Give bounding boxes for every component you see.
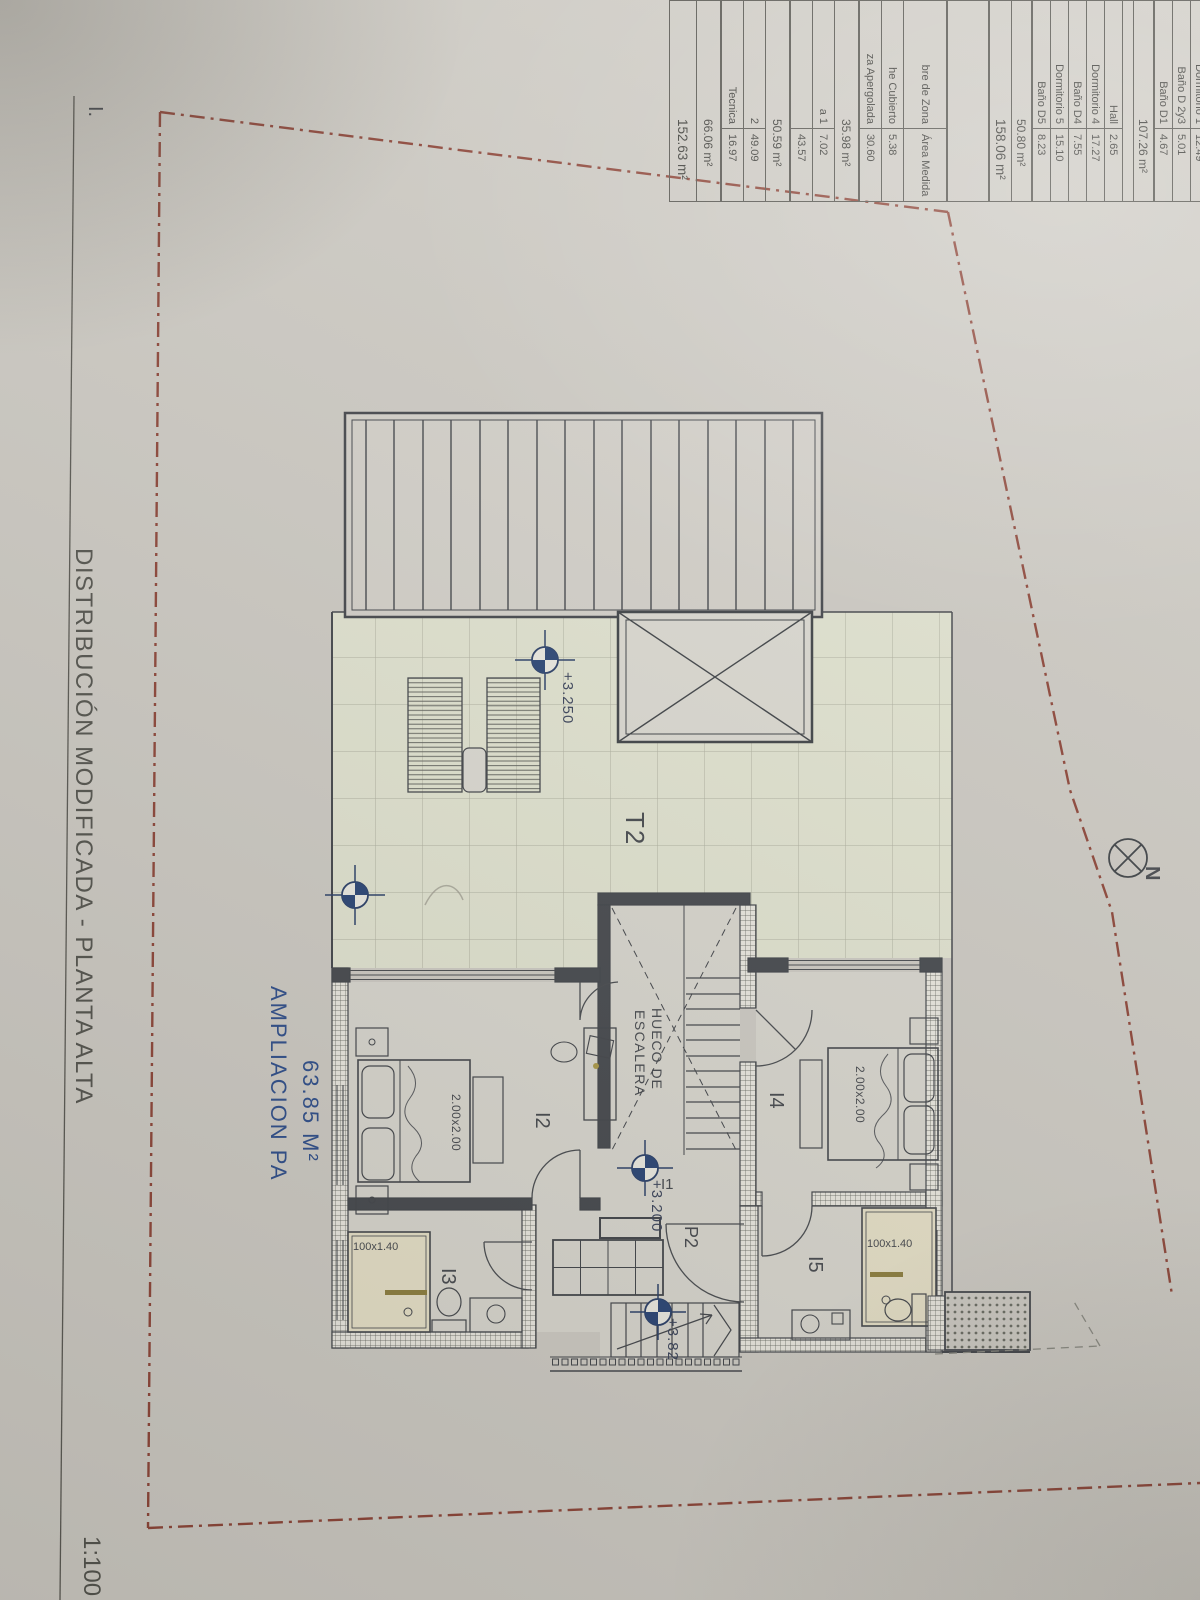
zone-total-cell: 50.59 m² — [771, 1, 785, 166]
zone-area-cell: 5.01 — [1176, 129, 1188, 201]
zone-area-cell: 8.23 — [1036, 129, 1048, 201]
area-table-row: 50.80 m² — [1011, 1, 1032, 201]
area-table-row: Dormitorio 112.49 — [1190, 1, 1200, 201]
paved-area — [928, 1292, 1100, 1354]
area-table-row: Dormitorio 417.27 — [1086, 1, 1104, 201]
room-label-i5: I5 — [804, 1256, 825, 1273]
zone-area-cell: 7.55 — [1072, 129, 1084, 201]
skylight-void — [618, 612, 812, 742]
room-label-i4: I4 — [765, 1092, 786, 1109]
area-table-row: 107.26 m² — [1133, 1, 1154, 201]
zone-name-cell: a 1 — [813, 1, 834, 129]
zone-area-cell: 17.27 — [1090, 129, 1102, 201]
area-table-upper: Dormitorio 112.49Baño D 2y35.01Baño D14.… — [988, 1, 1200, 201]
zone-total-cell: 35.98 m² — [840, 1, 854, 166]
room-label-i3: I3 — [437, 1268, 458, 1285]
zone-name-cell: Baño D1 — [1155, 1, 1172, 129]
stairwell-label-line1: HUECO DE — [649, 1008, 664, 1090]
zone-total-cell: 66.06 m² — [702, 1, 716, 166]
area-table-row: 152.63 m² — [669, 1, 696, 201]
shower-dimension-i5: 100x1.40 — [867, 1239, 912, 1250]
bed-dimension-i2: 2.00x2.00 — [449, 1094, 462, 1151]
page-title: DISTRIBUCIÓN MODIFICADA - PLANTA ALTA — [71, 548, 96, 1105]
bed-dimension-i4: 2.00x2.00 — [853, 1066, 866, 1123]
area-table-row: 158.06 m² — [989, 1, 1011, 201]
north-label: N — [1141, 866, 1162, 880]
area-table-row: Hall2.65 — [1104, 1, 1122, 201]
plan-linework — [0, 0, 1200, 1600]
zone-name-cell: Tecnica — [722, 1, 743, 129]
zone-total-cell: 152.63 m² — [676, 1, 691, 180]
corner-label: I. — [84, 106, 105, 117]
extension-label: AMPLIACION PA — [267, 986, 290, 1182]
zone-area-cell: 5.38 — [887, 129, 899, 201]
zone-name-cell: Dormitorio 5 — [1051, 1, 1068, 129]
shower-dimension-i3: 100x1.40 — [353, 1242, 398, 1253]
area-table-gap — [947, 1, 988, 201]
building-interior — [348, 905, 926, 1360]
zone-name-cell: Dormitorio 4 — [1087, 1, 1104, 129]
zone-area-cell: 30.60 — [865, 129, 877, 201]
area-table: Dormitorio 112.49Baño D 2y35.01Baño D14.… — [669, 0, 1200, 202]
area-table-row: 249.09 — [743, 1, 765, 201]
area-table-row: Dormitorio 515.10 — [1050, 1, 1068, 201]
stairwell-label-line2: ESCALERA — [632, 1010, 647, 1097]
zone-area-cell: 15.10 — [1054, 129, 1066, 201]
extension-area: 63.85 M² — [299, 1060, 322, 1163]
area-table-row: 35.98 m² — [834, 1, 859, 201]
zone-total-cell: 50.80 m² — [1015, 1, 1029, 166]
door-label-p2: P2 — [681, 1226, 700, 1248]
zone-area-cell: 12.49 — [1194, 129, 1200, 201]
zone-area-cell: 16.97 — [727, 129, 739, 201]
zone-area-cell: 49.09 — [749, 129, 761, 201]
zone-name-cell: Baño D4 — [1069, 1, 1086, 129]
area-table-row — [1122, 1, 1133, 201]
zone-name-cell: Hall — [1105, 1, 1122, 129]
table-header-name: bre de Zona — [904, 1, 946, 129]
area-table-row: Baño D58.23 — [1032, 1, 1050, 201]
scale-label: 1:100 — [79, 1536, 104, 1596]
zone-name-cell: za Apergolada — [860, 1, 881, 129]
zone-total-cell: 107.26 m² — [1137, 1, 1151, 173]
pergola — [345, 413, 822, 617]
area-table-row: a 17.02 — [812, 1, 834, 201]
room-label-terrace: T2 — [621, 812, 648, 846]
zone-area-cell: 4.67 — [1158, 129, 1170, 201]
area-table-header: bre de Zona Área Medida — [903, 1, 947, 201]
area-table-row: za Apergolada30.60 — [859, 1, 881, 201]
zone-name-cell: he Cubierto — [882, 1, 903, 129]
blueprint-photo: I. DISTRIBUCIÓN MODIFICADA - PLANTA ALTA… — [0, 0, 1200, 1600]
level-terrace-upper: +3.250 — [559, 672, 575, 724]
zone-area-cell: 2.65 — [1108, 129, 1120, 201]
zone-area-cell: 7.02 — [818, 129, 830, 201]
area-table-row: 66.06 m² — [696, 1, 721, 201]
area-table-row: Baño D47.55 — [1068, 1, 1086, 201]
area-table-row: 43.57 — [790, 1, 812, 201]
zone-area-cell: 43.57 — [796, 129, 808, 201]
area-table-row: Tecnica16.97 — [721, 1, 743, 201]
area-table-row: Baño D14.67 — [1154, 1, 1172, 201]
zone-name-cell: Dormitorio 1 — [1191, 1, 1200, 129]
room-label-i2: I2 — [531, 1112, 552, 1129]
area-table-row: he Cubierto5.38 — [881, 1, 903, 201]
area-table-row: Baño D 2y35.01 — [1172, 1, 1190, 201]
zone-name-cell: Baño D 2y3 — [1173, 1, 1190, 129]
area-table-row: 50.59 m² — [765, 1, 790, 201]
zone-name-cell — [791, 1, 812, 129]
table-header-value: Área Medida — [919, 129, 931, 201]
zone-name-cell: 2 — [744, 1, 765, 129]
area-table-lower: he Cubierto5.38za Apergolada30.6035.98 m… — [669, 1, 903, 201]
level-landing: +3.200 — [648, 1180, 664, 1232]
level-stair: +3.82 — [664, 1318, 680, 1361]
zone-total-cell: 158.06 m² — [993, 1, 1008, 180]
zone-name-cell: Baño D5 — [1033, 1, 1050, 129]
